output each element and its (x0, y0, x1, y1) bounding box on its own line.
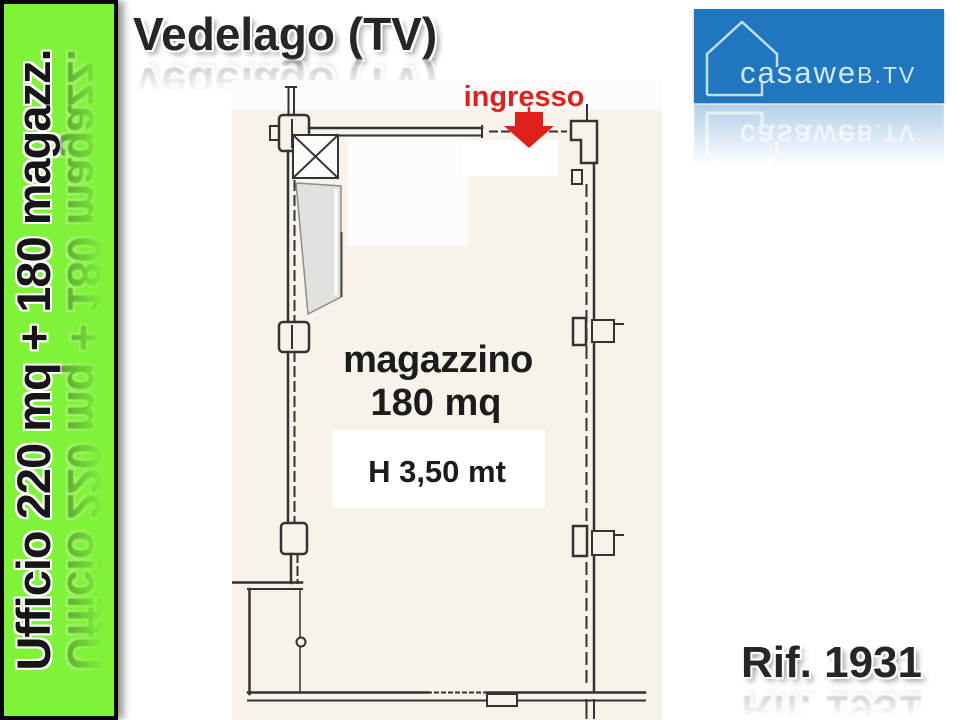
banner-title: Ufficio 220 mq + 180 magazz. (10, 49, 58, 670)
banner-rotated-text: Ufficio 220 mq + 180 magazz. Ufficio 220… (10, 49, 108, 670)
room-label: magazzino (343, 339, 533, 381)
floor-plan-drawing: ingresso magazzino 180 mq H 3,50 mt (232, 80, 662, 720)
area-label: 180 mq (371, 382, 502, 424)
logo-text-main: casawe (740, 55, 857, 90)
floor-plan: ingresso magazzino 180 mq H 3,50 mt (232, 80, 662, 720)
reference-label: Rif. 1931 (741, 638, 922, 688)
reference-label-reflection: Rif. 1931 (741, 685, 922, 720)
logo-text: casaweb.tv (740, 55, 916, 91)
casaweb-logo: casaweb.tv casaweb.tv (694, 9, 944, 103)
left-banner: Ufficio 220 mq + 180 magazz. Ufficio 220… (0, 0, 118, 720)
page-title-block: Vedelago (TV) Vedelago (TV) (133, 8, 437, 60)
banner-title-reflection: Ufficio 220 mq + 180 magazz. (60, 49, 108, 670)
page-title: Vedelago (TV) (133, 8, 437, 60)
reference-block: Rif. 1931 Rif. 1931 (741, 638, 922, 688)
listing-slide: Ufficio 220 mq + 180 magazz. Ufficio 220… (0, 0, 960, 720)
logo-text-suffix: b.tv (857, 62, 916, 88)
logo-card: casaweb.tv (694, 9, 944, 103)
height-label: H 3,50 mt (368, 454, 506, 489)
entrance-label: ingresso (464, 81, 585, 113)
logo-reflection: casaweb.tv (694, 105, 944, 199)
